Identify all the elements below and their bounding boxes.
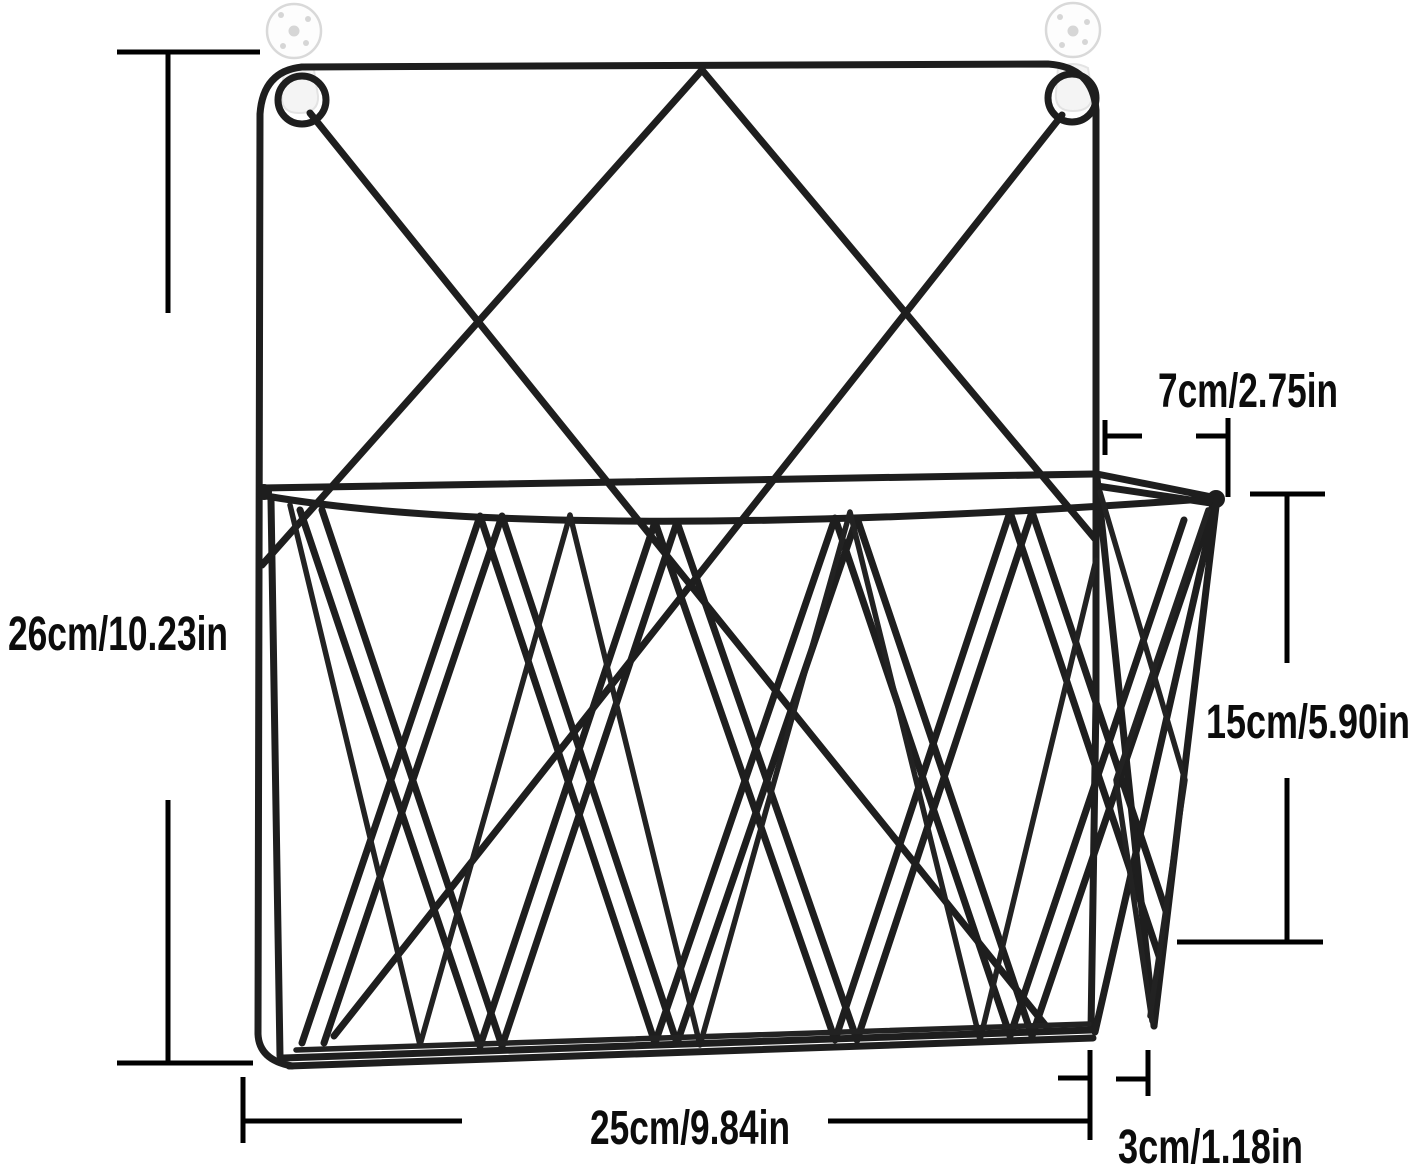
basket-back-rim <box>262 474 1094 488</box>
basket-left-edge <box>271 500 280 1056</box>
product-dimension-diagram: 26cm/10.23in 7cm/2.75in 15cm/5.90in 25cm… <box>0 0 1412 1167</box>
dimension-top-depth: 7cm/2.75in <box>1105 365 1338 497</box>
wall-anchor-right <box>1046 3 1100 57</box>
magazine-rack-diagram: 26cm/10.23in 7cm/2.75in 15cm/5.90in 25cm… <box>0 0 1412 1167</box>
cross-brace-wires <box>262 70 1096 1036</box>
dimension-label-top-depth: 7cm/2.75in <box>1158 365 1338 418</box>
dimension-label-bottom-depth: 3cm/1.18in <box>1118 1121 1303 1167</box>
basket-pocket <box>256 474 1225 1066</box>
dimension-width: 25cm/9.84in <box>243 1077 1090 1155</box>
wall-anchor-left <box>267 4 321 58</box>
dimension-label-pocket-height: 15cm/5.90in <box>1206 696 1410 749</box>
dimension-label-width: 25cm/9.84in <box>590 1102 790 1155</box>
dimension-bottom-depth: 3cm/1.18in <box>1058 1050 1303 1167</box>
dimension-total-height: 26cm/10.23in <box>8 52 260 1063</box>
dimension-label-total-height: 26cm/10.23in <box>8 608 228 661</box>
zigzag-wire <box>302 516 1184 1043</box>
